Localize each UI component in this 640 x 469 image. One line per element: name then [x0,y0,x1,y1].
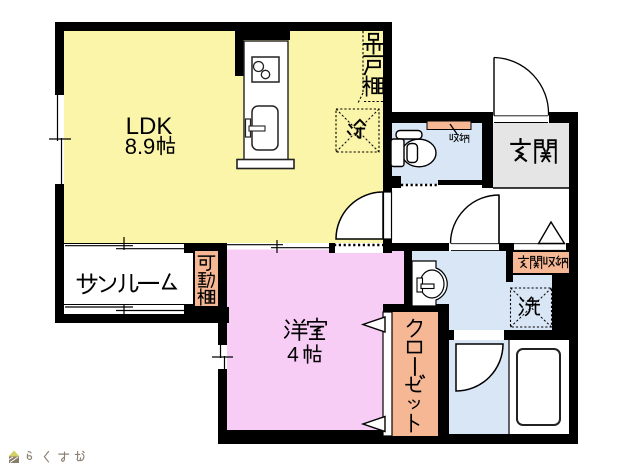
svg-text:4: 4 [287,344,299,367]
svg-text:8.9: 8.9 [125,134,156,159]
